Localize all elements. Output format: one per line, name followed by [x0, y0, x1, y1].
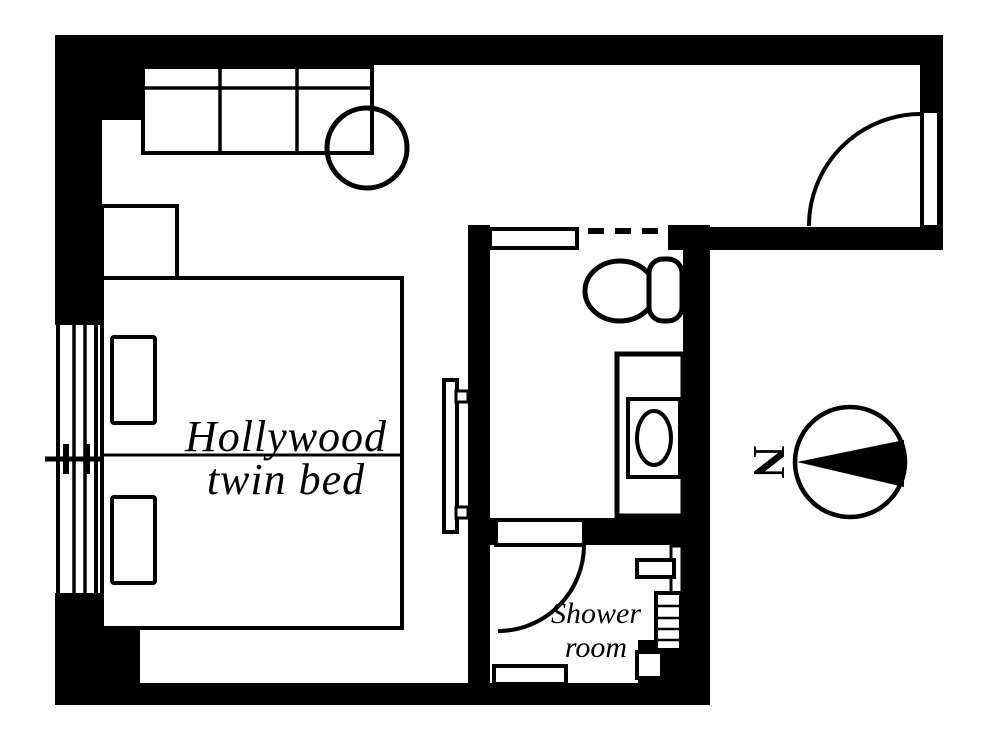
- entrance-door-swing-icon: [809, 108, 941, 229]
- bathroom-top-corner-wall: [668, 225, 710, 250]
- pillow-icon: [112, 337, 155, 423]
- sofa-icon: [143, 67, 372, 153]
- floor-plan-page: Hollywood twin bed: [0, 0, 1000, 750]
- bottom-wall: [55, 683, 710, 705]
- shower-fixture-box: [637, 652, 662, 678]
- top-wall: [55, 35, 941, 65]
- toilet-tank: [649, 259, 682, 321]
- nightstand-icon: [102, 206, 177, 278]
- floor-plan-drawing: Hollywood twin bed: [0, 0, 1000, 750]
- compass-north-icon: N: [744, 407, 905, 517]
- left-wall-upper: [55, 65, 102, 325]
- bed-label-line2: twin bed: [207, 455, 365, 504]
- sliding-door-icon: [490, 229, 577, 248]
- wall-tv-icon: [444, 380, 468, 532]
- compass-north-letter: N: [744, 445, 795, 478]
- pillow-icon: [112, 497, 155, 583]
- shower-bench-icon: [494, 666, 566, 684]
- toilet-icon: [585, 259, 682, 321]
- shower-control-panel-icon: [656, 593, 681, 650]
- bed-label-line1: Hollywood: [184, 412, 387, 461]
- right-wall-upper: [920, 35, 943, 110]
- toilet-bowl: [585, 261, 655, 321]
- shower-label-line2: room: [565, 631, 627, 664]
- entrance-door-arc: [809, 114, 921, 226]
- shower-door-leaf: [496, 520, 584, 545]
- vanity-sink-icon: [617, 354, 683, 516]
- shower-shelf-icon: [637, 560, 674, 577]
- bottom-left-corner-wall: [102, 627, 140, 683]
- bathroom-right-wall: [683, 248, 710, 683]
- twin-bed-icon: Hollywood twin bed: [102, 278, 402, 628]
- entrance-door-leaf: [922, 111, 939, 227]
- bathroom-left-wall: [468, 225, 490, 683]
- shower-label-line1: Shower: [551, 597, 641, 630]
